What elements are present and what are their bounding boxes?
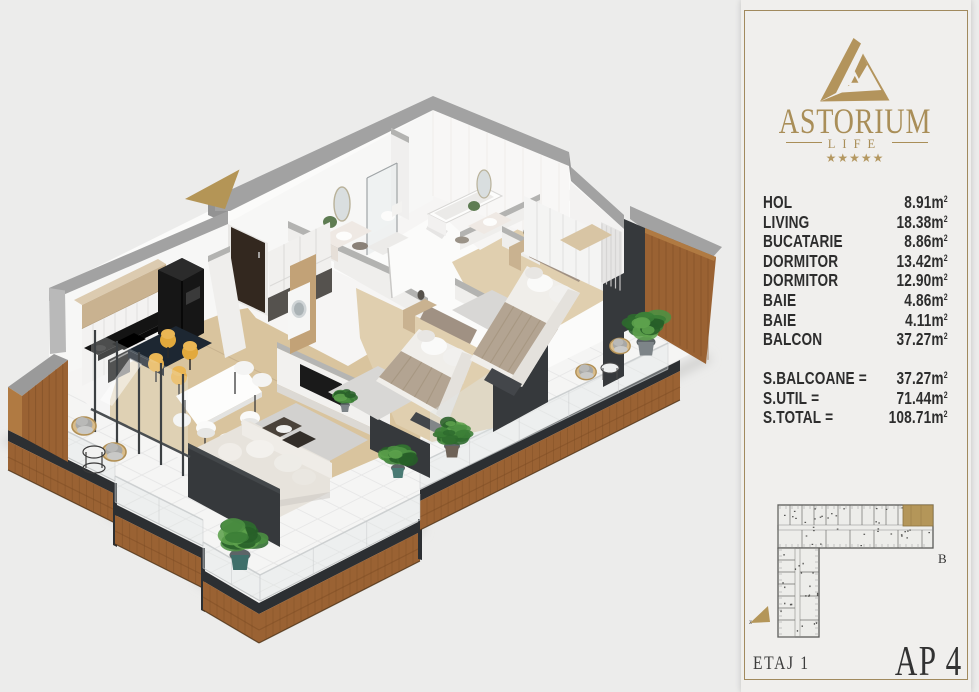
svg-text:z: z	[749, 618, 752, 626]
